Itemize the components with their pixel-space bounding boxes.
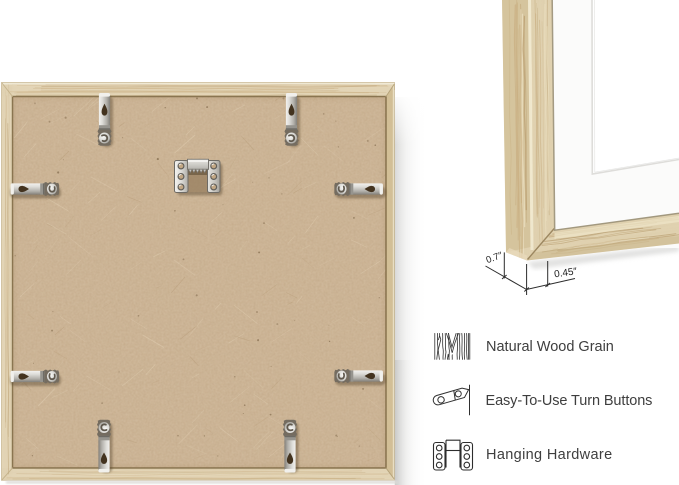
svg-text:0.7″: 0.7″ [485, 250, 505, 266]
